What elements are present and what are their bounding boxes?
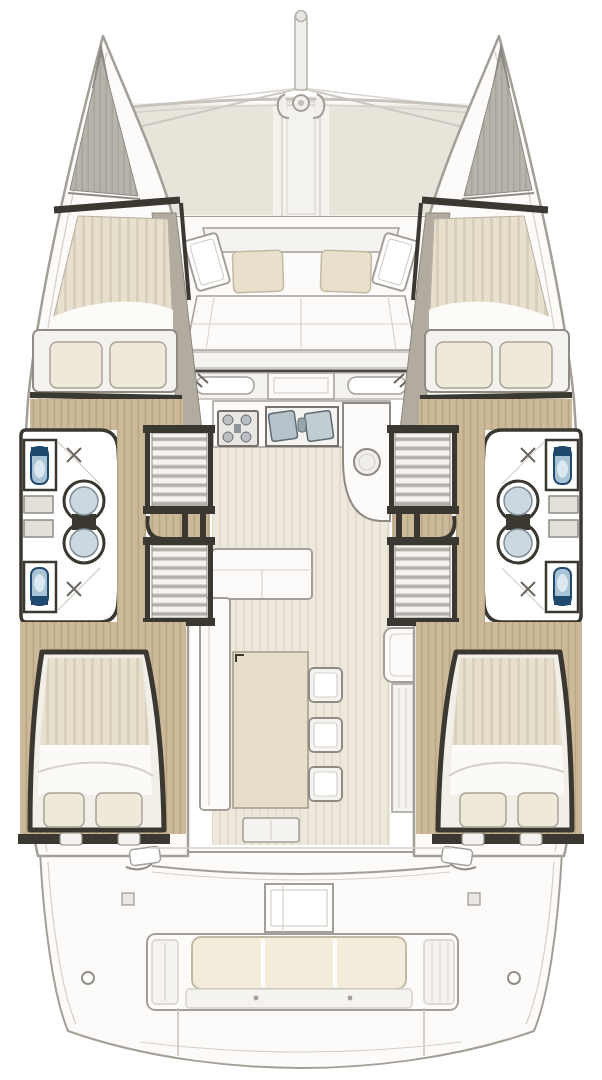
forward-bench-backrest — [203, 228, 399, 252]
bench-end-starboard — [424, 940, 454, 1004]
stove — [218, 411, 258, 446]
bathroom-block — [21, 430, 122, 622]
sill-hatch — [118, 833, 140, 845]
berth-foot-wall — [30, 395, 182, 398]
bowsprit-pole — [295, 14, 307, 90]
stove-controls — [234, 424, 241, 433]
companionway-stairs — [143, 425, 215, 626]
aft-cabin — [18, 622, 186, 845]
faucet — [298, 418, 306, 432]
stool-cushion — [314, 772, 337, 796]
aft-berth-mattress — [40, 658, 150, 745]
round-basin — [70, 529, 98, 557]
toilet-bowl — [34, 574, 45, 592]
deck-cleat — [82, 972, 94, 984]
bench-cushion — [192, 937, 406, 989]
deck-fitting — [122, 893, 134, 905]
aft-berth-blanket — [38, 745, 152, 795]
stair-rail — [208, 537, 213, 626]
cockpit-cushion-starboard — [320, 250, 371, 293]
sink-basin-right — [304, 410, 334, 441]
vanity-shelf — [24, 520, 53, 537]
sink-basin-left — [268, 410, 298, 441]
ledge-fitting — [348, 996, 353, 1001]
cockpit-table — [265, 884, 333, 932]
aft-pillow — [96, 793, 142, 827]
sill-hatch — [60, 833, 82, 845]
stair-rail — [208, 425, 213, 514]
toilet-tank — [31, 447, 48, 456]
saloon-table — [233, 652, 308, 808]
cockpit-cushion-port — [232, 250, 283, 293]
burner — [223, 432, 233, 442]
transom-bench — [147, 934, 458, 1010]
forward-pillow — [110, 342, 166, 388]
forward-bench-step — [182, 352, 420, 368]
vanity-shelf — [24, 496, 53, 513]
stair-rail — [145, 537, 150, 626]
aft-pillow — [44, 793, 84, 827]
stool-cushion — [314, 673, 337, 697]
floor-plan-canvas — [0, 0, 602, 1080]
sofa-side-bench — [200, 598, 230, 810]
stair-treads-forward — [152, 433, 207, 506]
stair-frame — [143, 537, 215, 545]
windlass-center — [298, 100, 304, 106]
catamaran-floor-plan — [0, 0, 602, 1080]
burner — [241, 415, 251, 425]
burner — [223, 415, 233, 425]
cockpit-step — [129, 846, 161, 866]
burner — [241, 432, 251, 442]
toilet-tank — [31, 596, 48, 605]
stair-rail — [145, 425, 150, 514]
toilet-bowl — [34, 460, 45, 478]
cushion-gap — [333, 939, 337, 987]
worktop-basin — [354, 449, 380, 475]
stools — [309, 668, 342, 801]
ledge-fitting — [254, 996, 259, 1001]
round-basin — [70, 487, 98, 515]
bench-ledge — [186, 989, 412, 1008]
stool-cushion — [314, 723, 337, 747]
basin-divider — [72, 514, 96, 530]
aft-cabin-sill — [18, 834, 170, 844]
bowsprit-tip — [296, 11, 307, 22]
stair-treads-aft — [152, 545, 207, 618]
stair-frame — [143, 425, 215, 433]
cushion-gap — [261, 939, 265, 987]
hull-corridor-floor — [117, 430, 146, 622]
forward-pillow — [50, 342, 102, 388]
galley-sink — [266, 407, 338, 446]
forward-door — [268, 373, 334, 399]
